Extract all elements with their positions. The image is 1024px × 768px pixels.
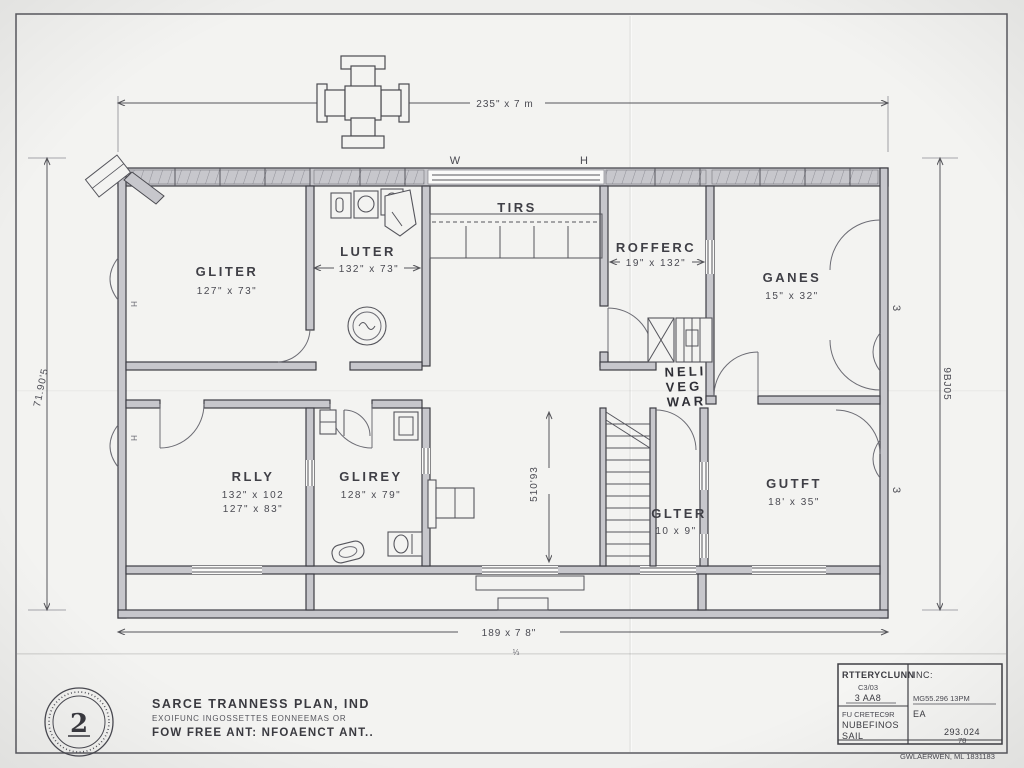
firm-text: SARCE TRANNESS PLAN, IND EXOIFUNC INGOSS… <box>152 697 374 739</box>
room-gutft-name: GUTFT <box>766 476 822 491</box>
wall-letter-e2: 3 <box>890 487 902 493</box>
room-rlly-size1: 132" x 102 <box>222 490 284 501</box>
room-neli-line3: WAR <box>667 393 707 409</box>
dim-bottom-mark: ⅓ <box>513 648 520 657</box>
firm-line3: FOW FREE ANT: NFOAENCT ANT.. <box>152 727 374 739</box>
wall-letter-e1: 3 <box>890 305 902 311</box>
room-luter-name: LUTER <box>340 244 396 259</box>
stamp-glyph: 2 <box>70 709 88 739</box>
dim-bottom: 189 x 7 8" <box>482 628 537 639</box>
room-rlly-size2: 127" x 83" <box>223 504 283 515</box>
wall-letter-h2: H <box>129 435 138 441</box>
room-glter-size: 10 x 9" <box>655 526 696 537</box>
titleblock-r3b: 78 <box>958 736 966 745</box>
room-gutft-size: 18' x 35" <box>768 497 820 508</box>
floorplan-drawing: 235" x 7 m 189 x 7 8" ⅓ 71.90'5 9BJ05 51… <box>0 0 1024 768</box>
firm-line1: SARCE TRANNESS PLAN, IND <box>152 697 370 711</box>
titleblock-r1: MG55.296 13PM <box>913 694 970 703</box>
titleblock-l1b: 3 AA8 <box>855 693 882 703</box>
room-glirey-size: 128" x 79" <box>341 490 401 501</box>
titleblock-below: GWLAERWEN, ML 1831183 <box>900 752 995 761</box>
titleblock-company: RTTERYCLUNN <box>842 670 915 680</box>
room-rlly-name: RLLY <box>232 469 275 484</box>
titleblock-r2: EA <box>913 709 926 719</box>
round-table <box>348 307 386 345</box>
room-rofferc-name: ROFFERC <box>616 240 696 255</box>
closet-and-upper-stair <box>648 318 712 362</box>
room-gliter-name: GLITER <box>196 264 259 279</box>
wall-letter-w: W <box>450 155 461 167</box>
room-neli-line1: NELI <box>664 363 706 379</box>
room-ganes-name: GANES <box>763 270 822 285</box>
titleblock-l1a: C3/03 <box>858 683 878 692</box>
wall-letter-h1: H <box>129 301 138 307</box>
room-ganes-size: 15" x 32" <box>765 291 818 302</box>
sheet-border <box>16 14 1007 753</box>
dim-hall: 510'93 <box>529 466 540 502</box>
room-neli-line2: VEG <box>665 378 702 394</box>
scanned-floorplan-page: 235" x 7 m 189 x 7 8" ⅓ 71.90'5 9BJ05 51… <box>0 0 1024 768</box>
dim-rofferc: 19" x 132" <box>626 258 686 269</box>
room-gliter-size: 127" x 73" <box>197 286 257 297</box>
dim-luter: 132" x 73" <box>339 264 399 275</box>
wall-letter-h: H <box>580 155 588 167</box>
dim-top: 235" x 7 m <box>476 99 533 110</box>
toilet-glirey <box>388 532 422 556</box>
room-glirey-name: GLIREY <box>339 469 402 484</box>
room-glter-name: GLTER <box>651 506 707 521</box>
room-tirs-name: TIRS <box>497 200 537 215</box>
dim-right: 9BJ05 <box>941 367 952 400</box>
firm-line2: EXOIFUNC INGOSSETTES EONNEEMAS OR <box>152 714 346 723</box>
titleblock-l2a: FU CRETEC9R <box>842 710 895 719</box>
titleblock-l3: SAIL <box>842 731 864 741</box>
titleblock-l2b: NUBEFINOS <box>842 720 899 730</box>
titleblock-inc: INC: <box>913 670 933 680</box>
